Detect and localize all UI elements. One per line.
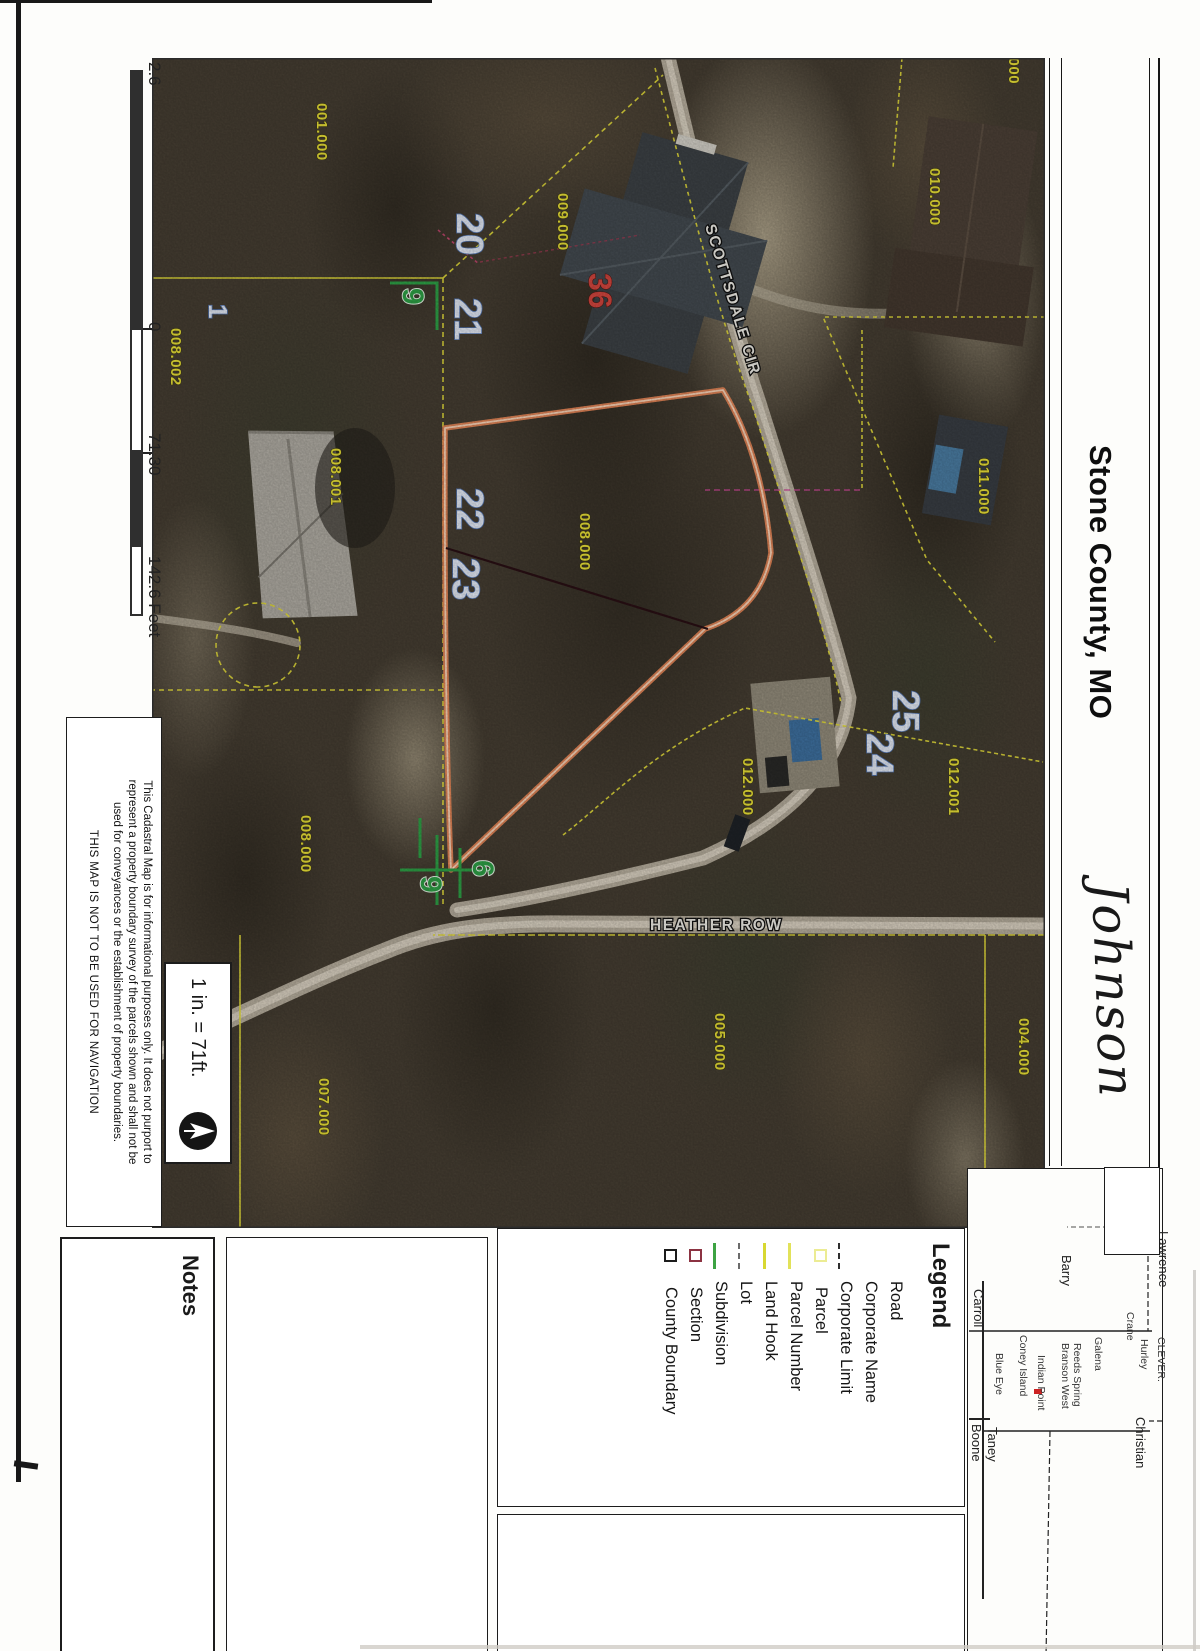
- notes-label: Notes: [177, 1239, 213, 1651]
- corporate-name-symbol: [864, 1243, 878, 1269]
- scan-edge-line: [360, 1645, 1200, 1649]
- landscape-document: Stone County, MO Johnson: [0, 0, 1200, 1651]
- county-locator-inset: Lawrence Christian Barry Carroll Taney B…: [967, 1168, 1163, 1651]
- legend-item-label: Subdivision: [711, 1281, 730, 1365]
- legend-item-subdivision: Subdivision: [708, 1243, 733, 1493]
- notes-box: Notes: [60, 1237, 215, 1651]
- scanned-cadastral-map-page: Stone County, MO Johnson: [0, 0, 1200, 1651]
- scalebar-segment: [130, 545, 143, 616]
- inset-place-branson-west: Branson West: [1059, 1343, 1071, 1409]
- scalebar-segment: [130, 452, 143, 545]
- scalebar-segment: [130, 70, 143, 328]
- legend-item-parcel: Parcel: [808, 1243, 833, 1493]
- inset-county-taney: Taney: [985, 1427, 1000, 1462]
- parcel-symbol: [814, 1249, 827, 1262]
- corporate-limit-symbol: [839, 1243, 841, 1269]
- map-scale-box: 1 in. = 71ft.: [164, 962, 232, 1164]
- legend-title: Legend: [926, 1243, 954, 1328]
- inset-place-blue-eye: Blue Eye: [993, 1353, 1005, 1395]
- scan-edge-line: [0, 0, 432, 3]
- legend-item-label: Road: [886, 1281, 905, 1320]
- legend-item-road: Road: [883, 1243, 908, 1493]
- county-boundary-symbol: [664, 1249, 677, 1262]
- aerial-parcel-map: 9.000 001.000 009.000 010.000 011.000 00…: [152, 58, 1045, 1228]
- disclaimer-line: represent a property boundary survey of …: [124, 718, 139, 1226]
- disclaimer-line: used for conveyances or the establishmen…: [109, 718, 124, 1226]
- land-hook-symbol: [764, 1243, 767, 1269]
- north-arrow-icon: [175, 1108, 221, 1154]
- map-scale-text: 1 in. = 71ft.: [187, 964, 210, 1108]
- legend-item-label: Corporate Limit: [836, 1281, 855, 1394]
- legend-side-box: [497, 1514, 965, 1651]
- page-title: Stone County, MO: [1082, 445, 1118, 719]
- handwritten-owner-name: Johnson: [1080, 881, 1146, 1099]
- legend-item-label: Lot: [736, 1281, 755, 1304]
- legend-box: Legend Road Corporate Name Corporate Lim…: [497, 1228, 965, 1507]
- legend-item-label: Parcel Number: [786, 1281, 805, 1391]
- scalebar-label: 2.6: [144, 62, 164, 86]
- inset-place-reeds-spring: Reeds Spring: [1071, 1343, 1083, 1407]
- lot-symbol: [739, 1243, 741, 1269]
- inset-place-galena: Galena: [1092, 1337, 1104, 1371]
- disclaimer-box: This Cadastral Map is for informational …: [66, 717, 162, 1227]
- scalebar-label: 142.6 Feet: [144, 556, 164, 637]
- photo-grain: [152, 58, 1045, 1228]
- road-symbol: [889, 1243, 903, 1269]
- scan-edge-line: [16, 0, 21, 1482]
- inset-place-coney-island: Coney Island: [1017, 1335, 1029, 1396]
- legend-item-land-hook: Land Hook: [758, 1243, 783, 1493]
- inset-place-clever: CLEVER.: [1155, 1337, 1167, 1382]
- disclaimer-line: This Cadastral Map is for informational …: [139, 718, 154, 1226]
- disclaimer-warning: THIS MAP IS NOT TO BE USED FOR NAVIGATIO…: [85, 718, 100, 1226]
- title-underline: [1061, 58, 1062, 1166]
- scalebar-label: 71.30: [144, 433, 164, 476]
- inset-county-christian: Christian: [1133, 1417, 1148, 1468]
- legend-item-label: Parcel: [811, 1287, 830, 1334]
- legend-item-lot: Lot: [733, 1243, 758, 1493]
- legend-item-label: Section: [686, 1287, 705, 1342]
- inset-place-hurley: Hurley: [1138, 1339, 1150, 1369]
- scalebar-segment: [130, 328, 143, 452]
- inset-blank-box: [1104, 1167, 1160, 1255]
- parcel-number-symbol: [789, 1243, 792, 1269]
- inset-place-indian-point: Indian Point: [1035, 1355, 1047, 1410]
- scalebar-tick: [143, 452, 152, 454]
- scalebar-label: 0: [144, 322, 164, 331]
- legend-item-label: Land Hook: [761, 1281, 780, 1361]
- inset-place-crane: Crane: [1124, 1312, 1136, 1341]
- inset-county-carroll: Carroll: [971, 1289, 986, 1327]
- legend-item-label: Corporate Name: [861, 1281, 880, 1403]
- legend-item-label: County Boundary: [661, 1287, 680, 1415]
- title-underline-inner: [1049, 58, 1050, 1166]
- legend-item-section: Section: [683, 1243, 708, 1493]
- legend-item-corporate-name: Corporate Name: [858, 1243, 883, 1493]
- inset-county-barry: Barry: [1059, 1255, 1074, 1286]
- scan-edge-line: [1193, 1270, 1196, 1651]
- legend-item-corporate-limit: Corporate Limit: [833, 1243, 858, 1493]
- subdivision-symbol: [714, 1243, 717, 1269]
- inset-county-boone: Boone: [969, 1424, 984, 1462]
- blank-panel: [226, 1237, 488, 1651]
- legend-item-county-boundary: County Boundary: [658, 1243, 683, 1493]
- legend-item-parcel-number: Parcel Number: [783, 1243, 808, 1493]
- scalebar-tick: [143, 328, 152, 330]
- section-symbol: [689, 1249, 702, 1262]
